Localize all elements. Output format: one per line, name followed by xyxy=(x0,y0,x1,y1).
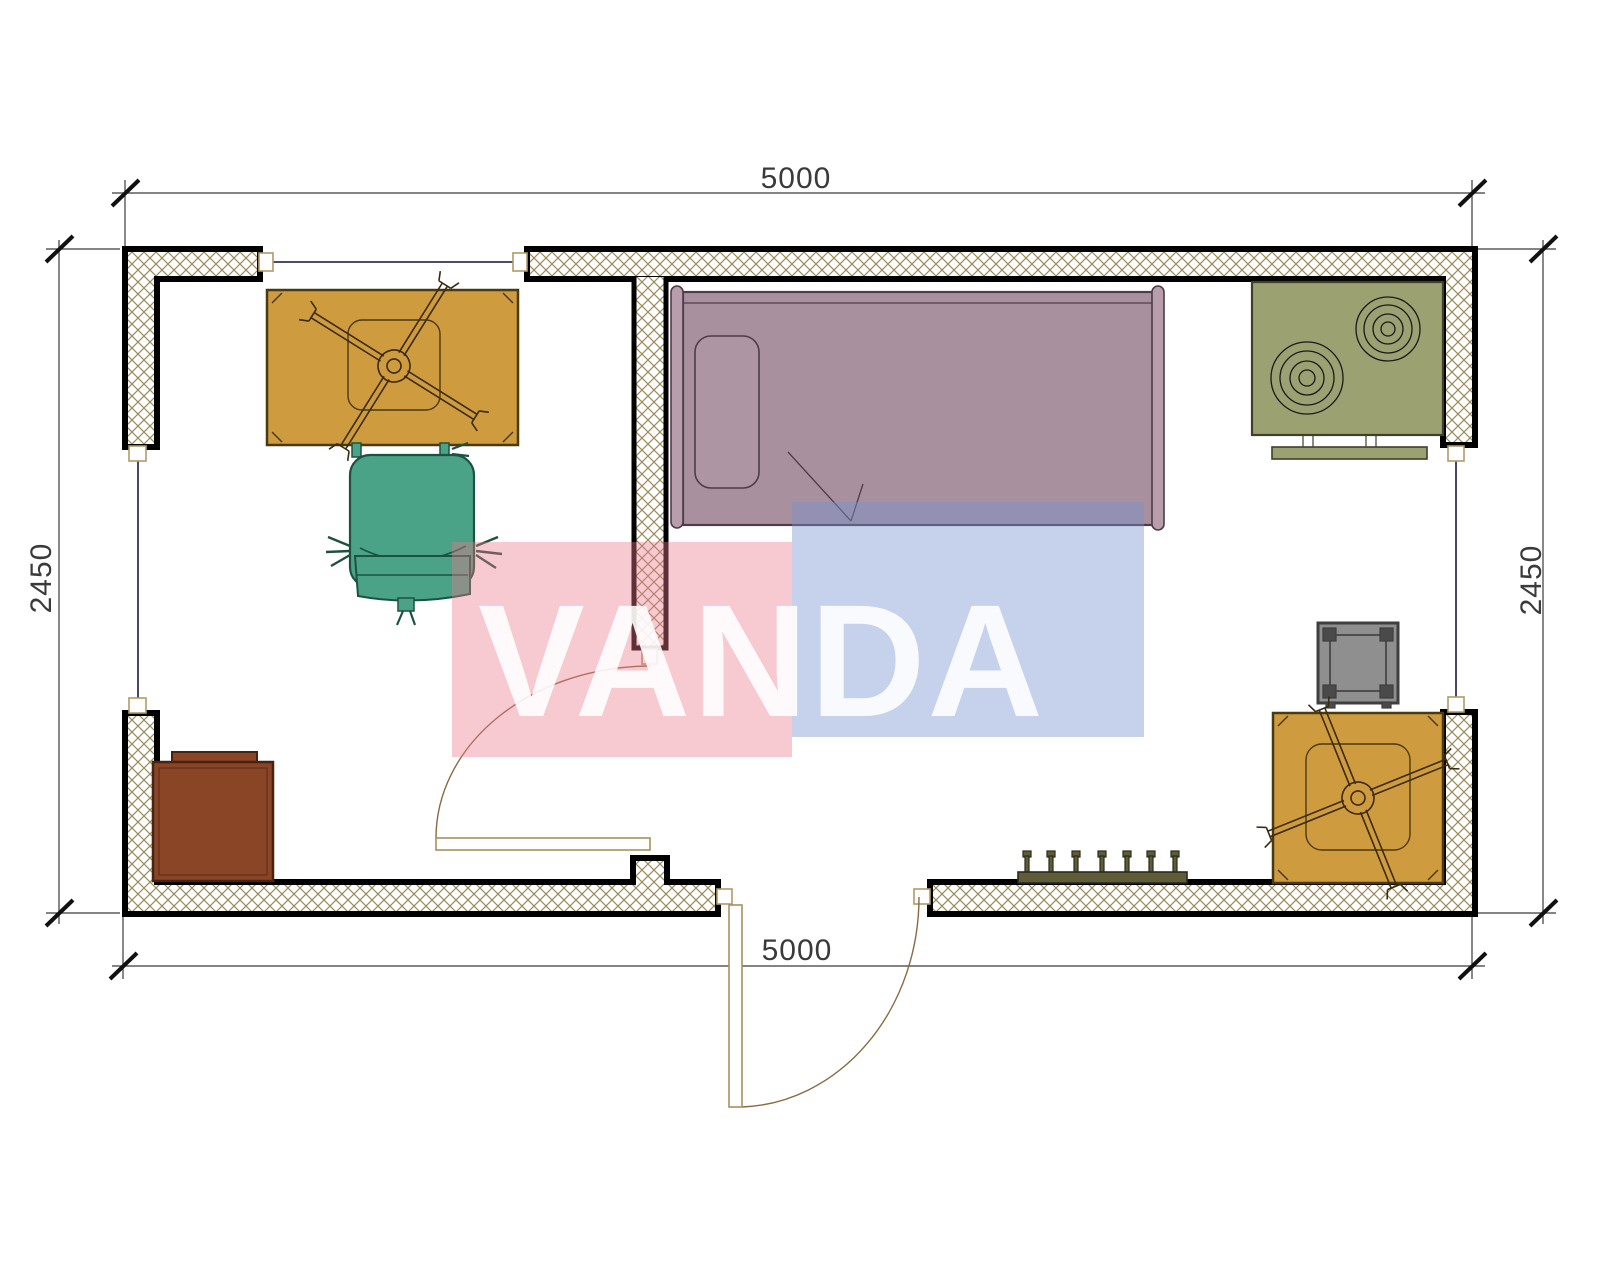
door-leaf xyxy=(729,905,742,1107)
stove-top xyxy=(1252,282,1443,435)
chair-foot xyxy=(352,443,361,457)
floor-plan-page: 5000 5000 2450 2450 xyxy=(0,0,1600,1280)
floor-plan-drawing: 5000 5000 2450 2450 xyxy=(0,0,1600,1280)
bed-pillow xyxy=(695,336,759,488)
dimension-label-top: 5000 xyxy=(761,162,832,195)
chair-base-stub xyxy=(398,598,414,611)
chair-claw xyxy=(397,611,415,625)
cabinet xyxy=(153,752,273,881)
chair-armrest-left xyxy=(326,537,350,566)
radiator-body xyxy=(1018,872,1187,883)
door-jamb-block xyxy=(717,889,732,904)
dimension-label-right: 2450 xyxy=(1515,545,1548,616)
stove-shelf-supports xyxy=(1303,435,1376,447)
bed-headboard xyxy=(671,286,683,528)
window-jamb-block xyxy=(129,698,146,713)
window-jamb-block xyxy=(259,253,273,271)
door-jamb-block xyxy=(914,889,930,904)
dimension-left: 2450 xyxy=(25,236,120,926)
watermark: VANDA xyxy=(452,502,1144,757)
stove xyxy=(1252,282,1443,459)
dimension-label-bottom: 5000 xyxy=(762,934,833,967)
window-jamb-block xyxy=(1448,697,1464,712)
window-jamb-block xyxy=(513,253,527,271)
door-leaf xyxy=(436,838,650,850)
bed-footboard xyxy=(1152,286,1164,530)
entry-door xyxy=(729,897,919,1107)
dimension-right: 2450 xyxy=(1478,236,1557,926)
stove-shelf xyxy=(1272,447,1427,459)
dimension-label-left: 2450 xyxy=(25,543,58,614)
side-table xyxy=(1318,623,1398,708)
radiator xyxy=(1018,851,1187,883)
wall-top-left-corner xyxy=(125,249,260,447)
window-jamb-block xyxy=(1448,446,1464,461)
table-top xyxy=(267,290,518,445)
bed xyxy=(671,286,1164,530)
watermark-text: VANDA xyxy=(478,571,1045,750)
table-top xyxy=(1273,713,1443,883)
door-swing-arc xyxy=(742,897,919,1107)
dimension-top: 5000 xyxy=(112,162,1486,246)
cabinet-body xyxy=(153,762,273,881)
dimension-bottom: 5000 xyxy=(110,917,1486,979)
radiator-fins xyxy=(1023,851,1179,873)
window-jamb-block xyxy=(129,446,146,461)
